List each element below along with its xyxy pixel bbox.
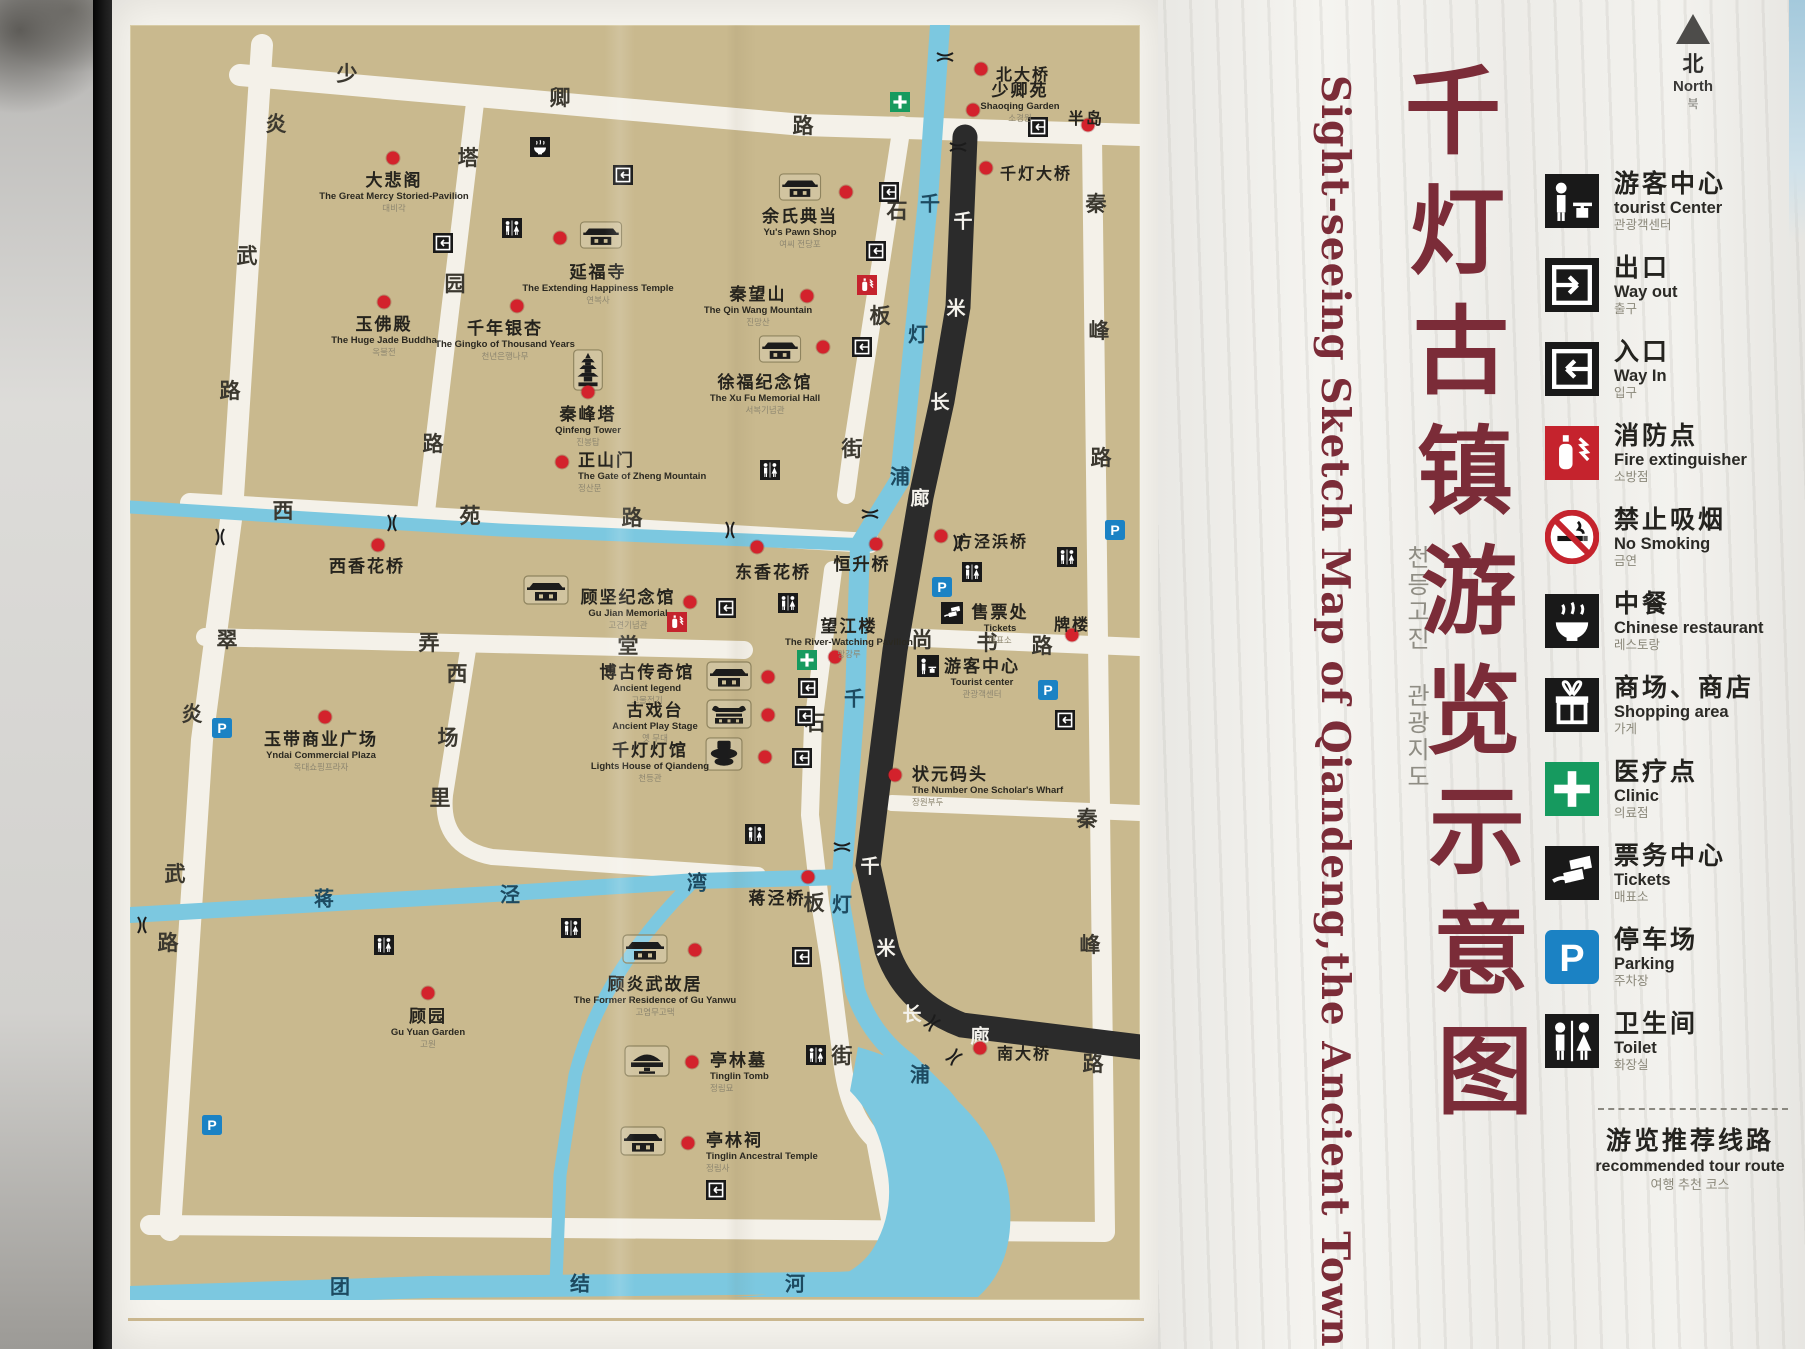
toilet-icon bbox=[962, 562, 982, 582]
entrance-icon bbox=[852, 337, 872, 357]
road-label-char: 峰 bbox=[1080, 929, 1101, 959]
legend-item-fire: 消防点Fire extinguisher소방점 bbox=[1545, 422, 1747, 484]
poi-dot bbox=[751, 541, 764, 554]
tourist-center-icon bbox=[1545, 174, 1599, 228]
corridor-label-char: 千 bbox=[860, 852, 879, 879]
bridge-label: 东香花桥 bbox=[735, 563, 811, 583]
legend-item-tickets: 票务中心Tickets매표소 bbox=[1545, 842, 1726, 904]
map-area: 炎 武 路 炎 武 路 少 卿 路 塔 园 路 西 苑 路 翠 弄 堂 尚 书 … bbox=[130, 25, 1140, 1300]
road-label-char: 翠 bbox=[217, 624, 238, 654]
road-label-char: 秦 bbox=[1077, 803, 1098, 833]
poi-dot bbox=[422, 987, 435, 1000]
bridge-mark-icon bbox=[382, 513, 402, 533]
bridge-label: 西香花桥 bbox=[329, 557, 405, 577]
poi-label: 正山门The Gate of Zheng Mountain정산문 bbox=[578, 451, 706, 493]
poi-dot bbox=[817, 341, 830, 354]
river-label-char: 灯 bbox=[908, 319, 928, 348]
entrance-icon bbox=[792, 947, 812, 967]
poi-dot bbox=[582, 386, 595, 399]
clinic-icon bbox=[890, 92, 910, 112]
bridge-mark-icon bbox=[948, 137, 968, 157]
entrance-icon bbox=[792, 748, 812, 768]
parking-icon bbox=[212, 718, 232, 738]
parking-icon bbox=[1038, 680, 1058, 700]
ticket-office-icon bbox=[941, 602, 963, 624]
board-border-line bbox=[128, 1318, 1144, 1321]
road-label-char: 路 bbox=[1091, 442, 1112, 472]
photo-of-map-sign: 炎 武 路 炎 武 路 少 卿 路 塔 园 路 西 苑 路 翠 弄 堂 尚 书 … bbox=[0, 0, 1805, 1349]
entrance-icon bbox=[613, 165, 633, 185]
road-label-char: 路 bbox=[158, 927, 179, 957]
pawnshop-building-icon bbox=[777, 173, 823, 201]
title-char: 古 bbox=[1406, 300, 1516, 404]
road-label-char: 秦 bbox=[1086, 188, 1107, 218]
legend-item-way-in: 入口Way In입구 bbox=[1545, 338, 1670, 400]
bridge-label: 方泾浜桥 bbox=[956, 528, 1028, 552]
river-label-char: 湾 bbox=[687, 867, 707, 896]
road-label-char: 路 bbox=[622, 502, 643, 532]
entrance-icon bbox=[433, 233, 453, 253]
river-label-char: 千 bbox=[920, 188, 940, 217]
ticket-office-icon bbox=[1545, 846, 1599, 900]
bridge-mark-icon bbox=[720, 520, 740, 540]
museum-building-icon bbox=[706, 661, 752, 691]
entrance-icon bbox=[795, 706, 815, 726]
north-zh: 北 bbox=[1658, 48, 1728, 78]
legend-item-way-out: 出口Way out출구 bbox=[1545, 254, 1678, 316]
road-label-char: 路 bbox=[1083, 1048, 1104, 1078]
corridor-label-char: 米 bbox=[946, 294, 965, 321]
residence-building-icon bbox=[622, 933, 668, 965]
poi-dot bbox=[554, 232, 567, 245]
poi-label: 顾园Gu Yuan Garden고원 bbox=[391, 1007, 465, 1049]
tomb-icon bbox=[624, 1045, 670, 1077]
poi-label: 顾炎武故居The Former Residence of Gu Yanwu고염무… bbox=[574, 975, 736, 1017]
memorial-building-icon bbox=[523, 575, 569, 605]
road-label-char: 弄 bbox=[419, 627, 440, 657]
river-label-char: 浦 bbox=[910, 1059, 930, 1088]
poi-dot bbox=[682, 1137, 695, 1150]
road-label-char: 少 bbox=[337, 58, 358, 88]
fire-extinguisher-icon bbox=[1545, 426, 1599, 480]
poi-label: 古戏台Ancient Play Stage옛 무대 bbox=[612, 701, 698, 743]
legend-item-restaurant: 中餐Chinese restaurant레스토랑 bbox=[1545, 590, 1763, 652]
title-char: 图 bbox=[1430, 1020, 1540, 1124]
bridge-label: 蒋泾桥 bbox=[749, 889, 806, 909]
entrance-icon bbox=[706, 1180, 726, 1200]
parking-icon bbox=[1545, 930, 1599, 984]
road-label-char: 苑 bbox=[460, 500, 481, 530]
river-label-char: 团 bbox=[330, 1271, 350, 1300]
fire-extinguisher-icon bbox=[857, 275, 877, 295]
bridge-label: 北大桥 bbox=[996, 61, 1050, 85]
title-char: 灯 bbox=[1402, 180, 1512, 284]
poi-label: 千年银杏The Gingko of Thousand Years천년은행나무 bbox=[435, 319, 575, 361]
road-label-char: 西 bbox=[273, 495, 294, 525]
road-label-char: 堂 bbox=[618, 630, 639, 660]
legend-item-parking: 停车场Parking주차장 bbox=[1545, 926, 1698, 988]
english-title: Sight-seeing Sketch Map of Qiandeng,the … bbox=[1312, 75, 1358, 1348]
poi-dot bbox=[759, 751, 772, 764]
legend-item-tourist-center: 游客中心tourist Center관광객센터 bbox=[1545, 170, 1726, 232]
road-label-char: 西 bbox=[447, 658, 468, 688]
poi-label: 游客中心Tourist center관광객센터 bbox=[944, 657, 1020, 699]
entrance-icon bbox=[866, 241, 886, 261]
entrance-icon bbox=[879, 182, 899, 202]
road-label-char: 园 bbox=[445, 268, 466, 298]
title-char: 镇 bbox=[1410, 420, 1520, 524]
road-label-char: 板 bbox=[804, 887, 825, 917]
road-label-char: 里 bbox=[430, 782, 451, 812]
road-label-char: 路 bbox=[793, 110, 814, 140]
corridor-label-char: 廊 bbox=[910, 484, 929, 511]
road-label-char: 武 bbox=[237, 240, 258, 270]
landmark-label: 牌楼 bbox=[1054, 611, 1090, 635]
north-indicator: 北 North 북 bbox=[1658, 14, 1728, 112]
title-char: 示 bbox=[1422, 780, 1532, 884]
restaurant-icon bbox=[530, 137, 550, 157]
legend-item-clinic: 医疗点Clinic의료점 bbox=[1545, 758, 1698, 820]
poi-dot bbox=[935, 530, 948, 543]
poi-label: 千灯灯馆Lights House of Qiandeng천등관 bbox=[591, 741, 709, 783]
parking-icon bbox=[1105, 520, 1125, 540]
road-label-char: 街 bbox=[832, 1040, 853, 1070]
poi-label: 徐福纪念馆The Xu Fu Memorial Hall서복기념관 bbox=[710, 373, 820, 415]
river-label-char: 千 bbox=[844, 683, 864, 712]
poi-dot bbox=[967, 104, 980, 117]
road-label-char: 路 bbox=[220, 375, 241, 405]
stage-building-icon bbox=[706, 699, 752, 729]
entrance-icon bbox=[1055, 710, 1075, 730]
poi-dot bbox=[870, 538, 883, 551]
road-label-char: 板 bbox=[870, 300, 891, 330]
poi-label: 亭林祠Tinglin Ancestral Temple정림사 bbox=[706, 1131, 818, 1173]
poi-label: 延福寺The Extending Happiness Temple연복사 bbox=[522, 263, 673, 305]
poi-dot bbox=[387, 152, 400, 165]
legend-item-toilet: 卫生间Toilet화장실 bbox=[1545, 1010, 1698, 1072]
river-label-char: 结 bbox=[570, 1268, 590, 1297]
poi-dot bbox=[372, 539, 385, 552]
way-in-icon bbox=[1545, 342, 1599, 396]
recommended-route-note: 游览推荐线路 recommended tour route 여행 추천 코스 bbox=[1550, 1126, 1805, 1194]
title-char: 览 bbox=[1418, 660, 1528, 764]
corridor-label-char: 长 bbox=[902, 1000, 921, 1027]
corridor-label-char: 千 bbox=[953, 207, 972, 234]
poi-dot bbox=[689, 944, 702, 957]
river-label-char: 河 bbox=[785, 1268, 805, 1297]
poi-label: 顾坚纪念馆Gu Jian Memorial고견기념관 bbox=[581, 588, 676, 630]
restaurant-icon bbox=[1545, 594, 1599, 648]
road-label-char: 街 bbox=[842, 433, 863, 463]
toilet-icon bbox=[1545, 1014, 1599, 1068]
poi-dot bbox=[974, 1042, 987, 1055]
toilet-icon bbox=[561, 918, 581, 938]
river-label-char: 灯 bbox=[832, 889, 852, 918]
poi-label: 售票处Tickets매표소 bbox=[972, 603, 1029, 645]
road-label-char: 路 bbox=[423, 428, 444, 458]
river-label-char: 浦 bbox=[890, 461, 910, 490]
road-label-char: 场 bbox=[438, 722, 459, 752]
corridor-label-char: 长 bbox=[930, 388, 949, 415]
poi-label: 玉佛殿The Huge Jade Buddha옥불전 bbox=[331, 315, 437, 357]
north-arrow-icon bbox=[1676, 14, 1710, 44]
toilet-icon bbox=[374, 935, 394, 955]
way-out-icon bbox=[1545, 258, 1599, 312]
poi-dot bbox=[840, 186, 853, 199]
road-label-char: 卿 bbox=[550, 82, 571, 112]
bridge-label: 南大桥 bbox=[997, 1040, 1051, 1064]
title-and-legend-panel: Sight-seeing Sketch Map of Qiandeng,the … bbox=[1158, 0, 1805, 1349]
road-label-char: 炎 bbox=[266, 108, 287, 138]
parking-icon bbox=[202, 1115, 222, 1135]
poi-label: 少卿苑Shaoqing Garden소경원 bbox=[980, 81, 1059, 123]
poi-dot bbox=[686, 1056, 699, 1069]
toilet-icon bbox=[806, 1045, 826, 1065]
north-ko: 북 bbox=[1658, 95, 1728, 112]
clinic-icon bbox=[1545, 762, 1599, 816]
entrance-icon bbox=[716, 598, 736, 618]
corridor-label-char: 米 bbox=[876, 934, 895, 961]
poi-label: 秦望山The Qin Wang Mountain진망산 bbox=[704, 285, 812, 327]
poi-label: 状元码头The Number One Scholar's Wharf장원부두 bbox=[912, 765, 1063, 807]
photo-left-background bbox=[0, 0, 94, 1349]
landmark-label: 半岛 bbox=[1068, 105, 1104, 129]
title-char: 意 bbox=[1426, 900, 1536, 1004]
poi-label: 博古传奇馆Ancient legend고물전기 bbox=[600, 663, 695, 705]
bridge-label: 恒升桥 bbox=[834, 555, 891, 575]
road-label-char: 峰 bbox=[1089, 315, 1110, 345]
road-label-char: 炎 bbox=[182, 698, 203, 728]
poi-dot bbox=[802, 871, 815, 884]
poi-label: 玉带商业广场Yndai Commercial Plaza옥대쇼핑프라자 bbox=[264, 730, 378, 772]
legend-divider bbox=[1598, 1108, 1788, 1110]
poi-dot bbox=[762, 671, 775, 684]
poi-label: 大悲阁The Great Mercy Storied-Pavilion대비각 bbox=[319, 171, 468, 213]
poi-label: 秦峰塔Qinfeng Tower진봉탑 bbox=[555, 405, 621, 447]
toilet-icon bbox=[760, 460, 780, 480]
road-label-char: 尚 bbox=[912, 624, 933, 654]
memorial-building-icon bbox=[757, 335, 803, 363]
map-board: 炎 武 路 炎 武 路 少 卿 路 塔 园 路 西 苑 路 翠 弄 堂 尚 书 … bbox=[112, 0, 1160, 1349]
poi-label: 亭林墓Tinglin Tomb정림묘 bbox=[710, 1051, 769, 1093]
toilet-icon bbox=[1057, 547, 1077, 567]
lamp-house-icon bbox=[704, 737, 744, 771]
title-char: 游 bbox=[1414, 540, 1524, 644]
poi-dot bbox=[319, 711, 332, 724]
temple-building-icon bbox=[578, 221, 624, 249]
road-label-char: 武 bbox=[165, 858, 186, 888]
toilet-icon bbox=[502, 218, 522, 238]
sign-frame-edge bbox=[93, 0, 114, 1349]
legend-item-no-smoking: 禁止吸烟No Smoking금연 bbox=[1545, 506, 1726, 568]
ancestral-temple-icon bbox=[620, 1125, 666, 1157]
poi-dot bbox=[762, 709, 775, 722]
poi-dot bbox=[980, 162, 993, 175]
poi-label: 望江楼The River-Watching Pavilion망강루 bbox=[785, 617, 913, 659]
parking-icon bbox=[932, 577, 952, 597]
river-label-char: 泾 bbox=[500, 879, 520, 908]
toilet-icon bbox=[745, 824, 765, 844]
toilet-icon bbox=[778, 593, 798, 613]
bridge-mark-icon bbox=[935, 47, 955, 67]
poi-dot bbox=[556, 456, 569, 469]
entrance-icon bbox=[798, 678, 818, 698]
bridge-label: 千灯大桥 bbox=[1000, 160, 1072, 184]
road-label-char: 塔 bbox=[458, 142, 479, 172]
bridge-mark-icon bbox=[210, 527, 230, 547]
legend-item-shopping: 商场、商店Shopping area가게 bbox=[1545, 674, 1754, 736]
no-smoking-icon bbox=[1545, 510, 1599, 564]
poi-dot bbox=[975, 63, 988, 76]
river-label-char: 蒋 bbox=[314, 883, 334, 912]
north-en: North bbox=[1658, 78, 1728, 95]
title-char: 千 bbox=[1398, 60, 1508, 164]
poi-label: 余氏典当Yu's Pawn Shop여씨 전당포 bbox=[762, 207, 838, 249]
road-label-char: 路 bbox=[1032, 630, 1053, 660]
bridge-mark-icon bbox=[860, 504, 880, 524]
poi-dot bbox=[684, 596, 697, 609]
poi-dot bbox=[889, 769, 902, 782]
tourist-center-icon bbox=[917, 655, 939, 677]
poi-dot bbox=[378, 296, 391, 309]
bridge-mark-icon bbox=[132, 915, 152, 935]
bridge-mark-icon bbox=[832, 837, 852, 857]
shopping-icon bbox=[1545, 678, 1599, 732]
